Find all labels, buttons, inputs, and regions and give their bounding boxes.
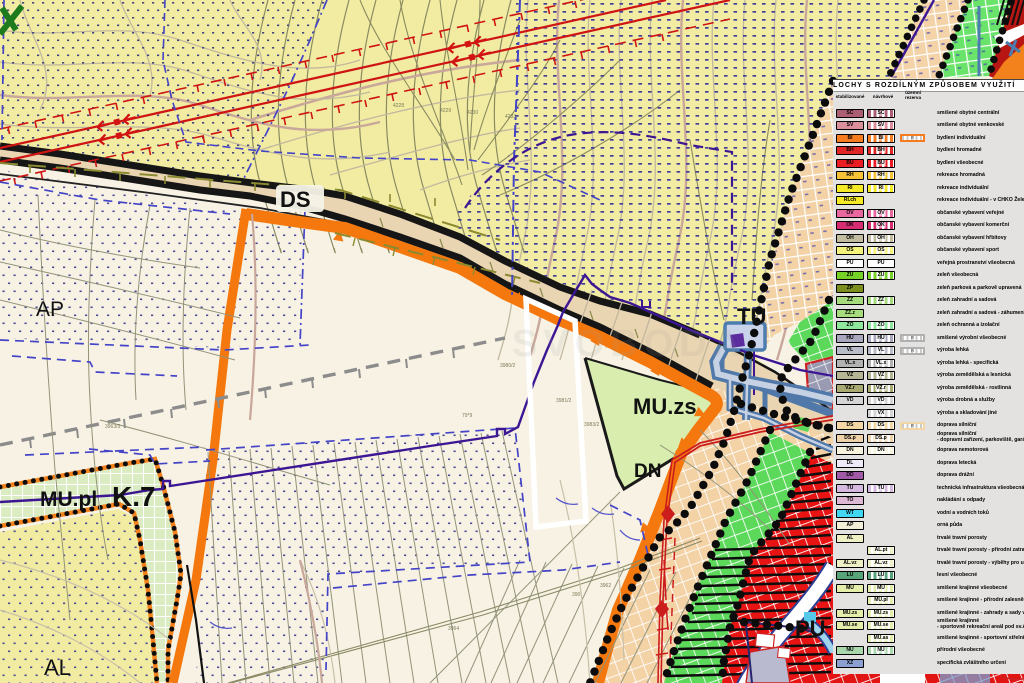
svg-text:4229: 4229 [440,108,451,114]
svg-text:390: 390 [572,592,581,598]
svg-text:3962: 3962 [600,583,611,589]
svg-text:AP: AP [36,298,64,321]
svg-text:3983/2: 3983/2 [584,422,600,428]
svg-text:DS: DS [280,187,311,212]
svg-text:MU.zs: MU.zs [633,394,697,419]
svg-text:4228: 4228 [393,103,404,109]
svg-text:79*9: 79*9 [462,413,473,419]
svg-text:TU: TU [737,304,766,329]
svg-text:DN: DN [634,461,661,482]
svg-text:3964: 3964 [448,626,459,632]
svg-text:4230: 4230 [467,110,478,116]
svg-text:3980/2: 3980/2 [500,363,516,369]
svg-text:3981/2: 3981/2 [556,398,572,404]
svg-text:MU.pl: MU.pl [40,488,97,511]
svg-text:K.7: K.7 [112,481,156,512]
svg-text:4233: 4233 [505,114,516,120]
svg-text:PU: PU [795,616,826,641]
svg-text:AL: AL [44,655,71,680]
svg-text:SVOBODA: SVOBODA [512,323,746,365]
svg-text:3963/3: 3963/3 [105,424,121,430]
